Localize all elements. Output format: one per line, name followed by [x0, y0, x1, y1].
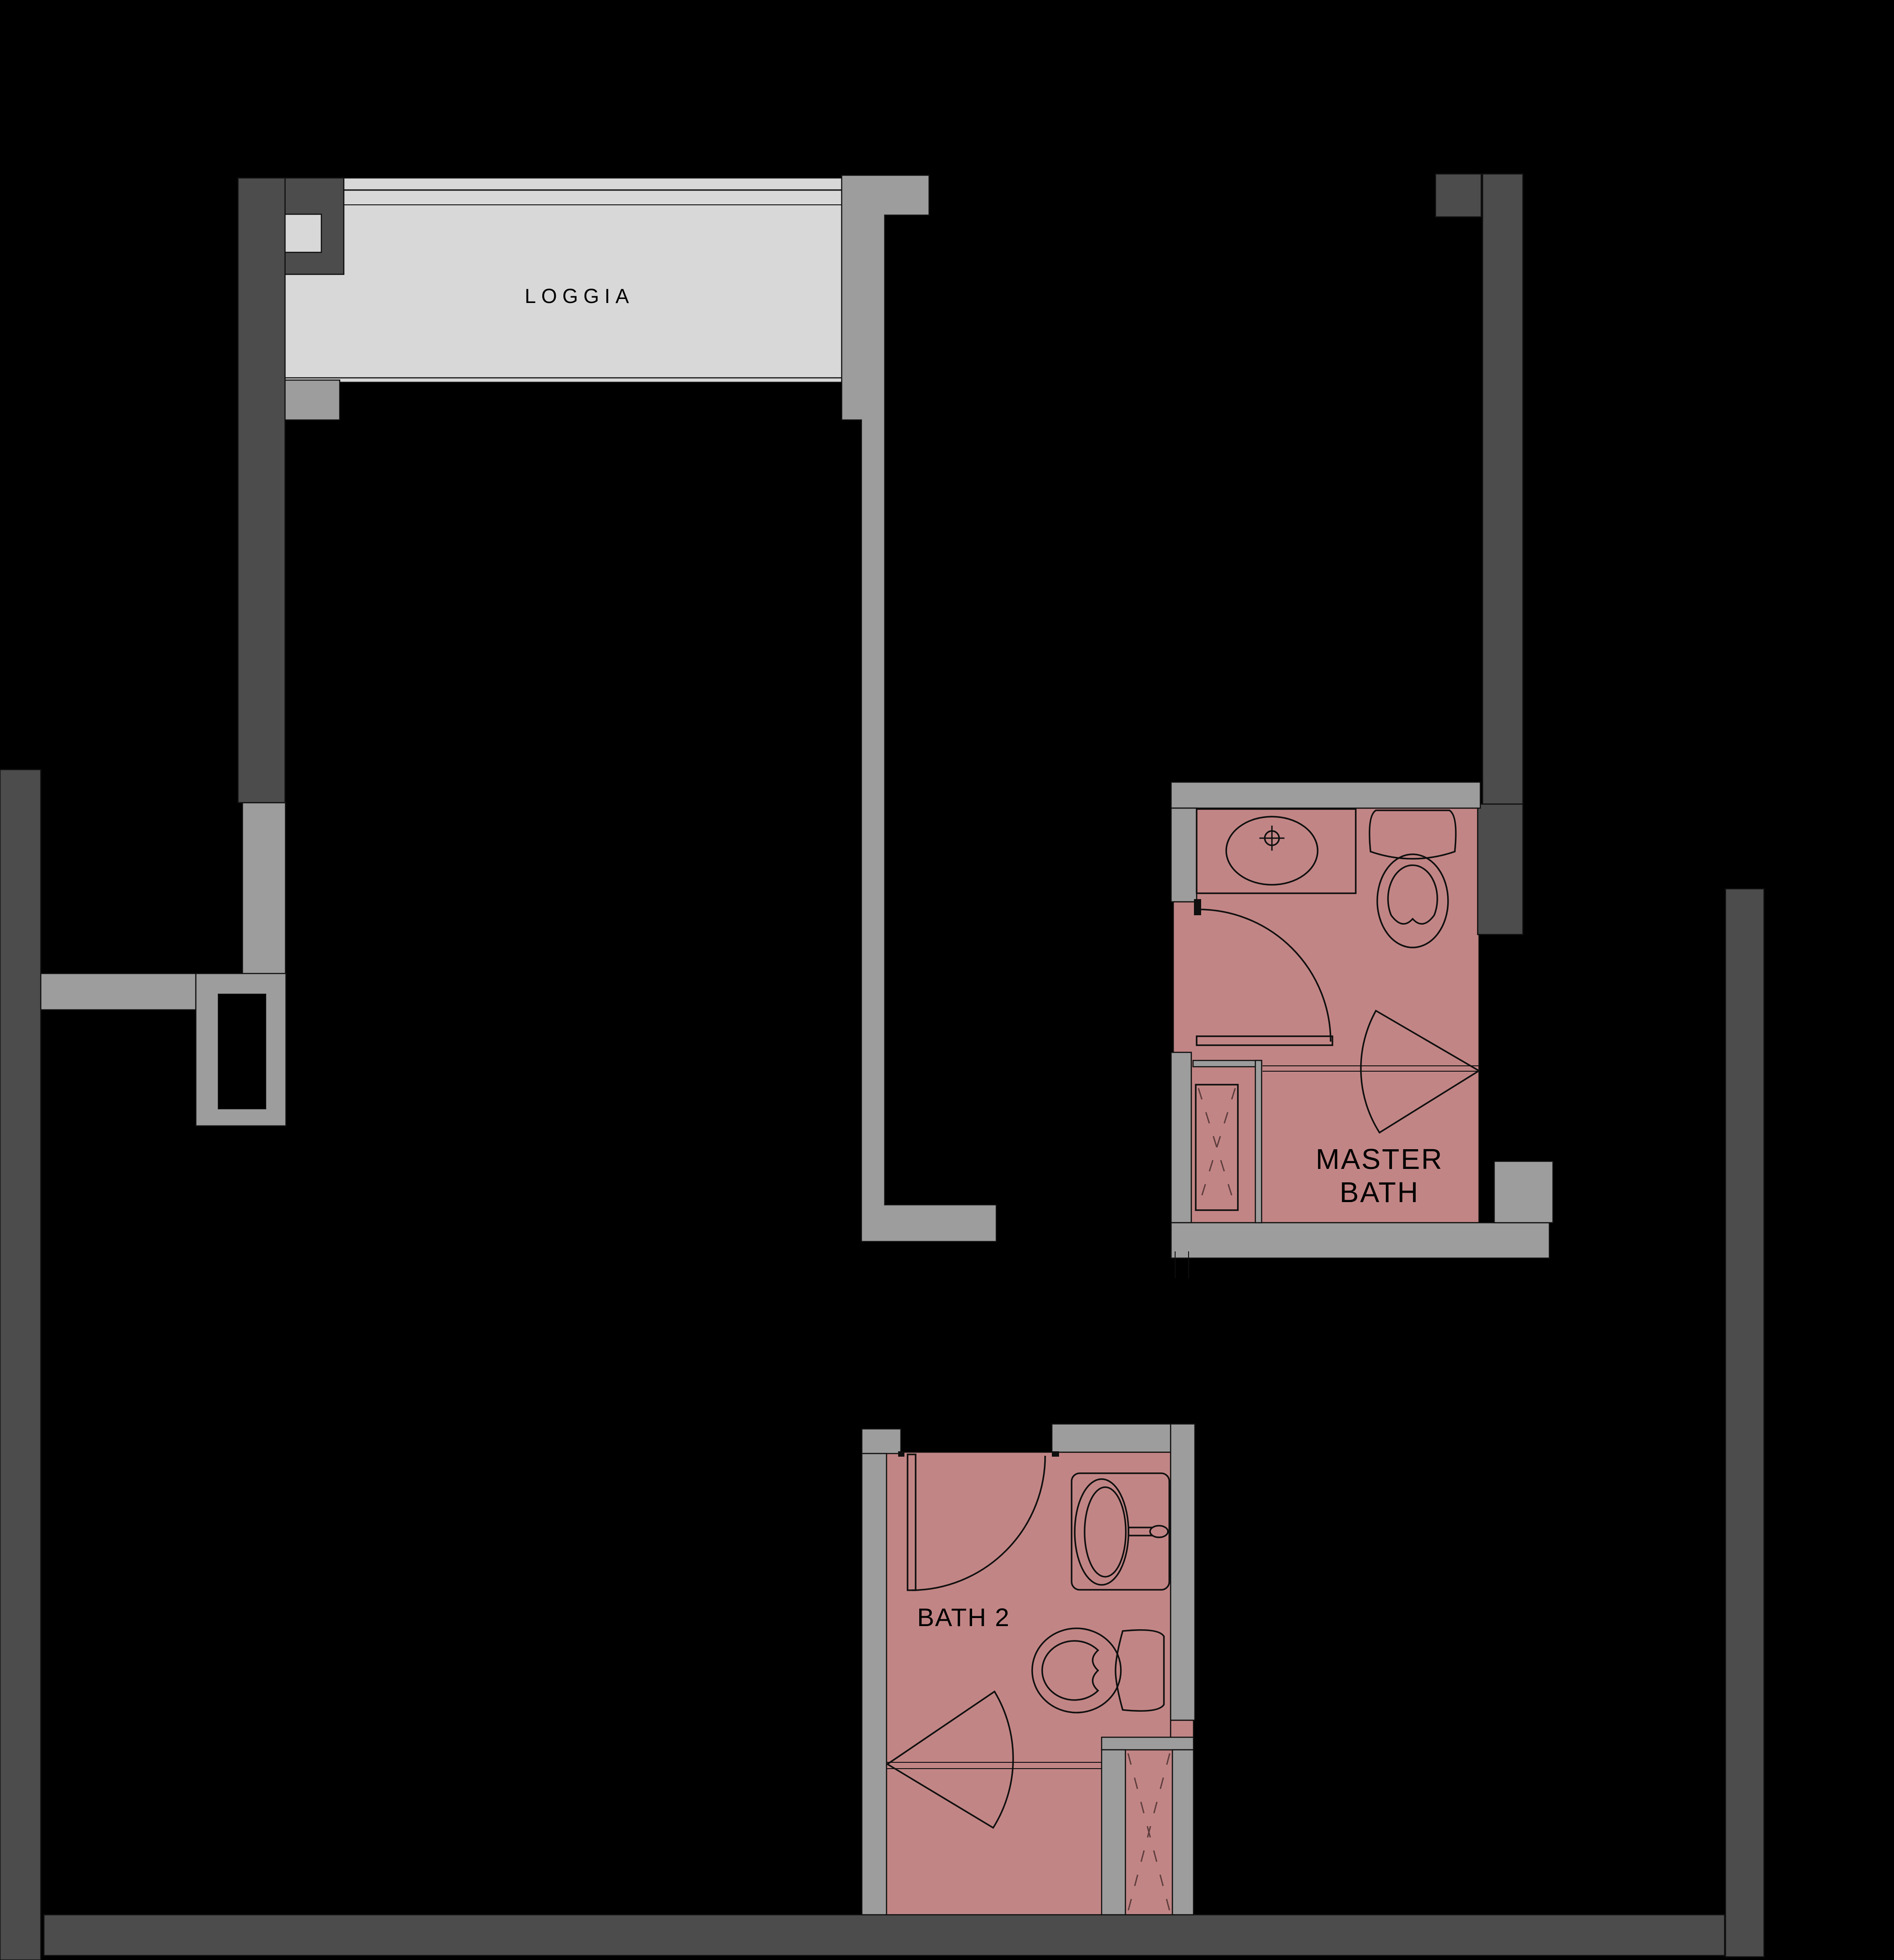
master-bath-label-line2: BATH [1340, 1176, 1419, 1208]
loggia-floor [284, 178, 843, 379]
master-bath-top-wall [1171, 782, 1480, 808]
loggia-bottom-wall-block [284, 380, 340, 420]
bath2-floor-notch [1171, 1720, 1193, 1739]
bath2-top-wall [1052, 1424, 1171, 1452]
bath2-right-wall [1171, 1424, 1195, 1720]
bath2-left-jamb-block [862, 1429, 901, 1454]
loggia-bottom-sill [284, 378, 843, 382]
master-bath-left-wall [1171, 808, 1197, 902]
top-right-pier [1436, 174, 1481, 217]
bath2-shower [1102, 1737, 1193, 1915]
master-bath-bottom-wall [1171, 1223, 1549, 1258]
loggia-label: LOGGIA [525, 285, 635, 307]
bath2-door-jamb-left [898, 1451, 904, 1457]
bath2-door-leaf [908, 1454, 916, 1590]
bath2-shower-left-wall [1102, 1750, 1125, 1915]
upper-right-wall-lower-block [1478, 804, 1523, 935]
master-bath-door-leaf [1197, 1036, 1332, 1045]
master-bath-shower-glass-panel [1255, 1060, 1262, 1223]
outer-right-wall [1725, 889, 1764, 1957]
master-bath-shower-wall [1171, 1052, 1191, 1223]
floor-plan-canvas: MASTER BATH [0, 0, 1894, 1960]
loggia-corner-niche [285, 214, 321, 252]
bath2-label: BATH 2 [917, 1603, 1010, 1632]
upper-left-wall [238, 178, 285, 803]
upper-right-wall [1483, 174, 1523, 804]
master-bath-shower-top-rail [1193, 1060, 1262, 1067]
bath2-shower-top-rail [1102, 1737, 1193, 1750]
bath2-shower-right-wall [1172, 1750, 1193, 1915]
master-bath-bottom-step-block [1494, 1161, 1553, 1223]
left-stub-wall [40, 974, 196, 1010]
bath2-left-wall [862, 1454, 886, 1915]
left-door-frame-opening [218, 994, 266, 1109]
bath2-room: BATH 2 [862, 1424, 1195, 1915]
master-bath-label-line1: MASTER [1316, 1143, 1444, 1175]
bath2-faucet-icon [1129, 1527, 1152, 1536]
outer-left-wall [0, 770, 41, 1960]
master-bath-door-jamb [1194, 899, 1201, 915]
bottom-wall [44, 1915, 1725, 1956]
bath2-door-jamb-right [1052, 1451, 1059, 1457]
